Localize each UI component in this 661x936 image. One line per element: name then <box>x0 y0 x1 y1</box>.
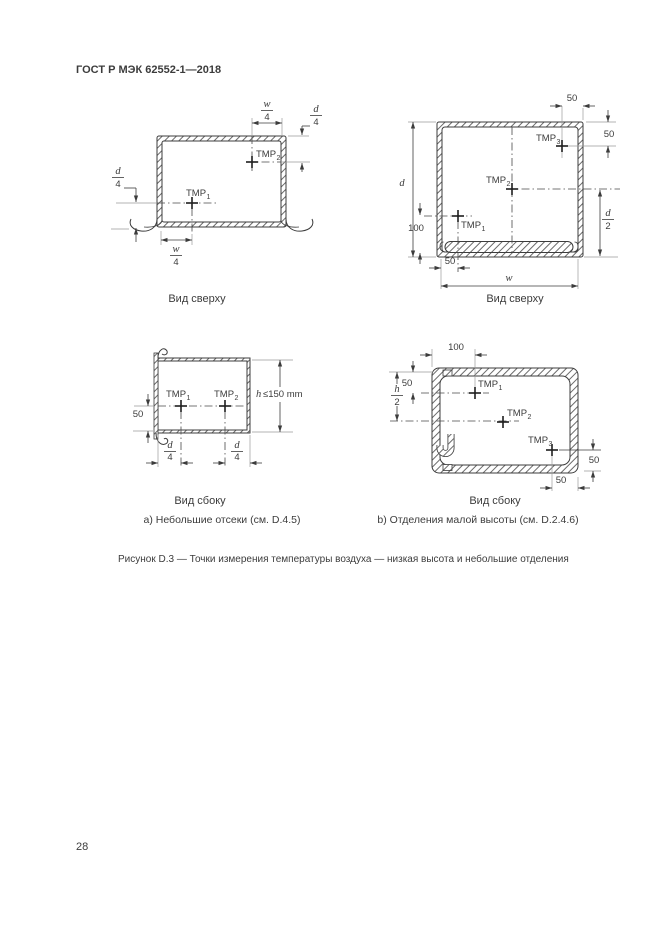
dim-d4-left: d 4 <box>111 166 136 242</box>
svg-text:1: 1 <box>499 385 503 392</box>
svg-text:TMP: TMP <box>186 188 206 199</box>
svg-text:TMP: TMP <box>536 133 556 144</box>
svg-text:100: 100 <box>448 342 464 353</box>
svg-text:2: 2 <box>605 221 610 232</box>
svg-text:h: h <box>394 384 399 395</box>
dim-d4-bottom-right: d 4 <box>213 435 262 467</box>
hinge-clip-top <box>443 370 452 376</box>
svg-text:50: 50 <box>589 455 600 466</box>
door-shelf-bar <box>445 242 573 253</box>
gasket-curl-top <box>158 349 167 358</box>
hinge-clip-bottom <box>443 465 452 471</box>
dim-50-left: 50 <box>402 361 413 404</box>
svg-text:w: w <box>263 99 270 110</box>
gasket-flange-right <box>281 219 313 231</box>
gasket-flange-left <box>130 219 162 231</box>
svg-text:TMP: TMP <box>507 408 527 419</box>
document-page: ГОСТ Р МЭК 62552-1—2018 28 а) Небольшие … <box>0 0 661 936</box>
svg-text:4: 4 <box>167 452 172 463</box>
svg-text:d: d <box>605 208 611 219</box>
svg-text:TMP: TMP <box>214 389 234 400</box>
dim-50-left: 50 <box>133 394 153 443</box>
view-label-side-a: Вид сбоку <box>174 495 226 507</box>
svg-text:3: 3 <box>549 441 553 448</box>
svg-text:TMP: TMP <box>461 220 481 231</box>
svg-text:TMP: TMP <box>256 149 276 160</box>
view-label-top-b: Вид сверху <box>486 293 544 305</box>
svg-text:50: 50 <box>445 256 456 267</box>
dim-w4-bottom: w 4 <box>161 231 192 268</box>
dim-50-bottom: 50 <box>429 256 470 289</box>
svg-text:1: 1 <box>207 194 211 201</box>
view-label-top-a: Вид сверху <box>168 293 226 305</box>
svg-text:w: w <box>505 273 512 284</box>
svg-text:2: 2 <box>277 155 281 162</box>
svg-text:4: 4 <box>173 257 178 268</box>
svg-text:TMP: TMP <box>478 379 498 390</box>
svg-text:≤150 mm: ≤150 mm <box>263 389 303 400</box>
compartment-walls <box>432 368 578 473</box>
svg-text:d: d <box>167 440 173 451</box>
svg-text:2: 2 <box>394 397 399 408</box>
dim-d2-right: d 2 <box>584 190 618 257</box>
dim-100-left: 100 <box>408 203 424 264</box>
svg-text:4: 4 <box>234 452 239 463</box>
diagram-low-compartment-side-view: 100 50 h 2 50 50 TMP 1 <box>389 342 601 507</box>
svg-text:TMP: TMP <box>528 435 548 446</box>
diagram-low-compartment-top-view: 50 50 d 100 d 2 <box>399 93 620 305</box>
svg-text:d: d <box>234 440 240 451</box>
figure-canvas: ГОСТ Р МЭК 62552-1—2018 28 а) Небольшие … <box>0 0 661 936</box>
svg-text:2: 2 <box>507 181 511 188</box>
dim-50-top: 50 <box>550 93 595 120</box>
caption-a: а) Небольшие отсеки (см. D.4.5) <box>144 514 301 526</box>
caption-b: b) Отделения малой высоты (см. D.2.4.6) <box>377 514 578 526</box>
svg-text:d: d <box>313 104 319 115</box>
dim-50-right: 50 <box>589 439 600 482</box>
dim-50-bottom: 50 <box>540 475 590 488</box>
diagram-small-compartments-side-view: 50 h ≤150 mm d 4 d 4 <box>133 349 303 507</box>
svg-text:50: 50 <box>567 93 578 104</box>
svg-text:50: 50 <box>133 409 144 420</box>
svg-text:4: 4 <box>313 117 318 128</box>
svg-text:4: 4 <box>115 179 120 190</box>
svg-text:3: 3 <box>557 139 561 146</box>
svg-text:w: w <box>172 244 179 255</box>
svg-text:2: 2 <box>235 395 239 402</box>
svg-text:50: 50 <box>556 475 567 486</box>
dim-w-bottom: w <box>441 259 578 289</box>
dim-d4-bottom-left: d 4 <box>146 435 193 467</box>
svg-text:TMP: TMP <box>486 175 506 186</box>
standard-header: ГОСТ Р МЭК 62552-1—2018 <box>76 64 221 76</box>
svg-text:1: 1 <box>482 226 486 233</box>
dim-w4-top: w 4 <box>252 99 282 135</box>
page-number: 28 <box>76 841 88 853</box>
svg-text:2: 2 <box>528 414 532 421</box>
svg-text:4: 4 <box>264 112 269 123</box>
diagram-small-compartments-top-view: w 4 d 4 d 4 w 4 <box>111 99 322 305</box>
svg-text:1: 1 <box>187 395 191 402</box>
figure-caption: Рисунок D.3 — Точки измерения температур… <box>118 553 569 565</box>
svg-text:50: 50 <box>604 129 615 140</box>
svg-text:TMP: TMP <box>166 389 186 400</box>
dim-height-limit: h ≤150 mm <box>252 360 303 432</box>
svg-text:100: 100 <box>408 223 424 234</box>
svg-text:d: d <box>399 178 405 189</box>
dim-d-left: d <box>399 122 436 257</box>
svg-text:d: d <box>115 166 121 177</box>
svg-text:h: h <box>256 389 261 400</box>
view-label-side-b: Вид сбоку <box>469 495 521 507</box>
svg-text:50: 50 <box>402 378 413 389</box>
